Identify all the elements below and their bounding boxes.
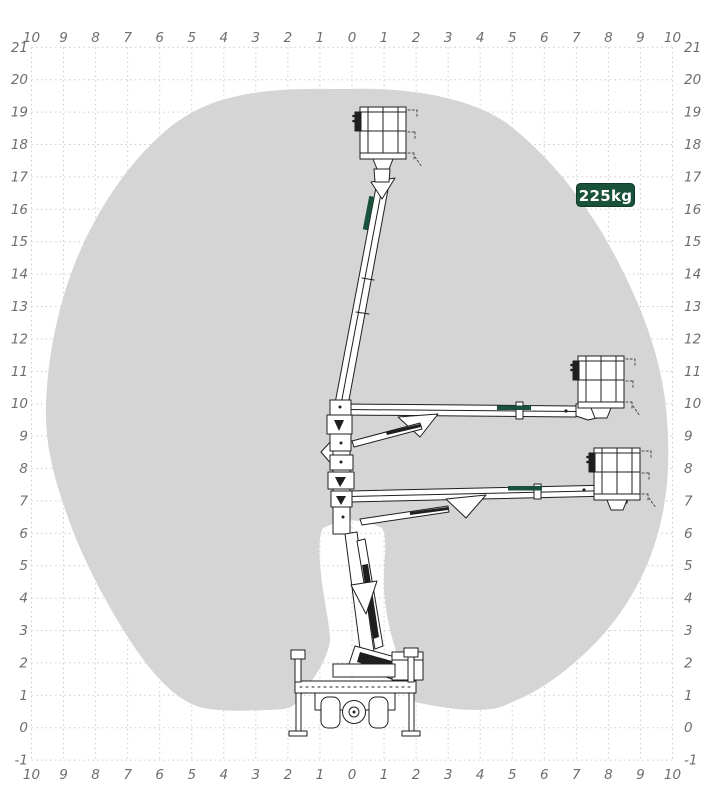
- axis-label-top: 8: [604, 30, 613, 46]
- axis-label-top: 10: [664, 30, 681, 46]
- axis-label-top: 4: [220, 30, 229, 46]
- axis-label-left: 2: [19, 655, 28, 671]
- axis-label-top: 3: [252, 30, 261, 46]
- axis-label-right: 1: [684, 688, 693, 704]
- axis-label-right: 16: [684, 202, 701, 218]
- axis-label-left: 14: [11, 267, 28, 283]
- axis-label-right: 11: [684, 364, 701, 380]
- axis-label-top: 7: [572, 30, 581, 46]
- axis-label-bottom: 1: [380, 767, 389, 783]
- axis-label-top: 2: [284, 30, 293, 46]
- axis-label-right: 12: [684, 331, 701, 347]
- axis-label-left: -1: [15, 753, 28, 769]
- axis-label-right: 9: [684, 429, 693, 445]
- axis-label-right: 10: [684, 396, 701, 412]
- axis-label-left: 3: [19, 623, 28, 639]
- axis-label-right: 14: [684, 267, 701, 283]
- axis-label-left: 9: [19, 429, 28, 445]
- axis-label-bottom: 5: [187, 767, 196, 783]
- axis-label-left: 17: [11, 169, 29, 185]
- axis-label-left: 15: [11, 234, 28, 250]
- axis-label-left: 12: [11, 331, 28, 347]
- axis-label-top: 1: [380, 30, 389, 46]
- axis-label-right: 17: [684, 169, 702, 185]
- axis-label-bottom: 2: [284, 767, 293, 783]
- axis-label-right: 19: [684, 105, 701, 121]
- axis-label-bottom: 6: [155, 767, 164, 783]
- axis-label-right: 7: [684, 493, 693, 509]
- axis-label-left: 5: [19, 558, 28, 574]
- axis-label-right: 18: [684, 137, 701, 153]
- axis-label-bottom: 0: [348, 767, 357, 783]
- axis-label-right: 13: [684, 299, 701, 315]
- axis-label-top: 4: [476, 30, 485, 46]
- axis-label-bottom: 8: [91, 767, 100, 783]
- axis-label-bottom: 7: [572, 767, 581, 783]
- axis-label-bottom: 4: [476, 767, 485, 783]
- axis-label-bottom: 9: [636, 767, 645, 783]
- axis-label-left: 1: [19, 688, 28, 704]
- axis-label-top: 5: [508, 30, 517, 46]
- axis-label-left: 8: [19, 461, 28, 477]
- axis-label-bottom: 5: [508, 767, 517, 783]
- axis-label-left: 13: [11, 299, 28, 315]
- axis-label-top: 0: [348, 30, 357, 46]
- axis-label-top: 1: [316, 30, 325, 46]
- axis-label-left: 19: [11, 105, 28, 121]
- axis-label-bottom: 9: [59, 767, 68, 783]
- axis-label-left: 0: [19, 720, 28, 736]
- axis-label-right: 6: [684, 526, 693, 542]
- axis-label-bottom: 1: [316, 767, 325, 783]
- axis-label-left: 11: [11, 364, 28, 380]
- axis-label-left: 16: [11, 202, 28, 218]
- axis-label-bottom: 3: [444, 767, 453, 783]
- axis-label-right: 5: [684, 558, 693, 574]
- brand-logo-mark: [508, 486, 542, 491]
- axis-label-right: 4: [684, 591, 693, 607]
- axis-label-bottom: 6: [540, 767, 549, 783]
- working-envelope-diagram: 1010998877665544332211001122334455667788…: [0, 0, 709, 812]
- axis-label-top: 9: [636, 30, 645, 46]
- axis-label-right: 8: [684, 461, 693, 477]
- axis-label-left: 7: [19, 493, 28, 509]
- diagram-canvas: 1010998877665544332211001122334455667788…: [0, 0, 709, 812]
- axis-label-right: 2: [684, 655, 693, 671]
- axis-label-right: 15: [684, 234, 701, 250]
- axis-label-bottom: 2: [412, 767, 421, 783]
- axis-label-top: 7: [123, 30, 132, 46]
- axis-label-top: 5: [187, 30, 196, 46]
- axis-label-bottom: 3: [252, 767, 261, 783]
- brand-logo-mark: [497, 406, 531, 411]
- axis-label-top: 8: [91, 30, 100, 46]
- axis-label-bottom: 10: [664, 767, 681, 783]
- axis-label-left: 6: [19, 526, 28, 542]
- axis-label-top: 6: [540, 30, 549, 46]
- axis-label-left: 21: [11, 40, 28, 56]
- axis-label-right: 21: [684, 40, 701, 56]
- axis-label-left: 18: [11, 137, 28, 153]
- axis-label-bottom: 10: [23, 767, 40, 783]
- capacity-badge-label: 225kg: [579, 187, 633, 205]
- axis-label-top: 9: [59, 30, 68, 46]
- axis-label-right: -1: [684, 753, 697, 769]
- axis-label-bottom: 8: [604, 767, 613, 783]
- axis-label-top: 6: [155, 30, 164, 46]
- axis-label-right: 3: [684, 623, 693, 639]
- axis-label-left: 20: [11, 72, 28, 88]
- axis-label-right: 20: [684, 72, 701, 88]
- axis-label-right: 0: [684, 720, 693, 736]
- axis-label-bottom: 7: [123, 767, 132, 783]
- axis-label-left: 4: [19, 591, 28, 607]
- axis-label-top: 2: [412, 30, 421, 46]
- capacity-badge: 225kg: [577, 184, 635, 207]
- axis-label-top: 3: [444, 30, 453, 46]
- axis-label-bottom: 4: [220, 767, 229, 783]
- axis-label-left: 10: [11, 396, 28, 412]
